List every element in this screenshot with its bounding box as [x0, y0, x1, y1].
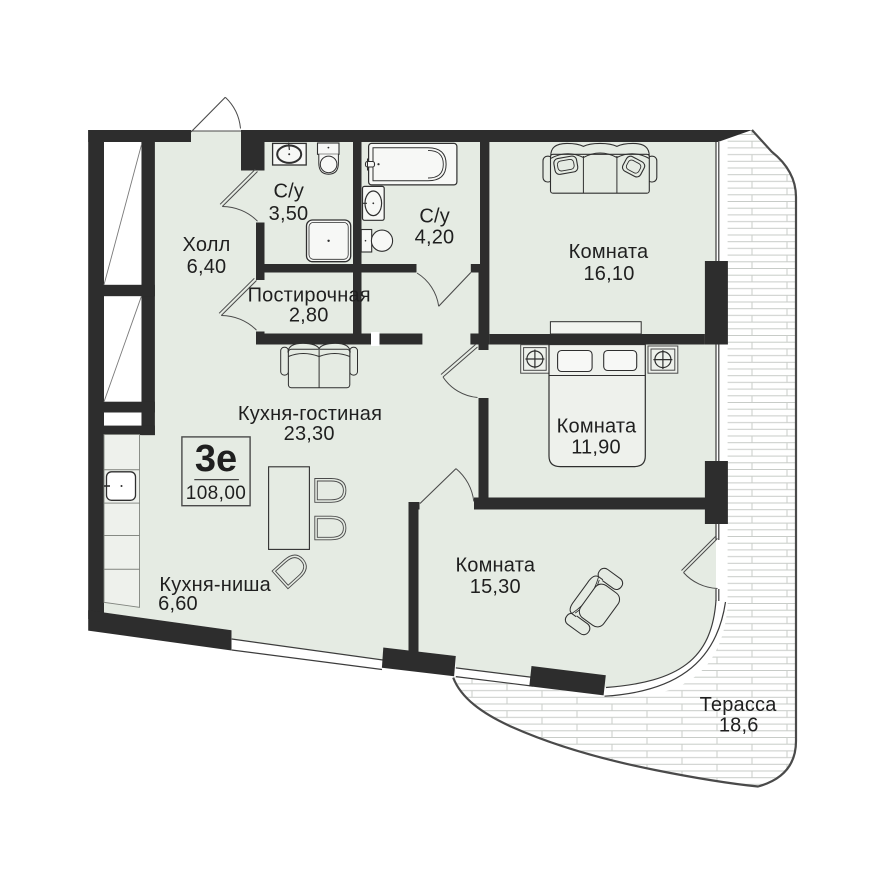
svg-text:Терасса: Терасса: [700, 694, 778, 716]
svg-text:6,40: 6,40: [187, 256, 227, 278]
svg-text:16,10: 16,10: [583, 263, 634, 285]
svg-text:11,90: 11,90: [571, 436, 621, 458]
svg-text:Комната: Комната: [557, 416, 637, 438]
svg-text:С/у: С/у: [419, 205, 450, 227]
svg-text:3е: 3е: [195, 438, 237, 480]
svg-text:15,30: 15,30: [470, 576, 521, 598]
svg-text:4,20: 4,20: [415, 226, 455, 248]
svg-text:Холл: Холл: [183, 234, 231, 256]
svg-text:Комната: Комната: [569, 241, 649, 263]
svg-text:Комната: Комната: [455, 555, 535, 577]
svg-text:6,60: 6,60: [158, 593, 198, 615]
svg-text:Постирочная: Постирочная: [248, 284, 371, 306]
svg-text:18,6: 18,6: [719, 715, 759, 737]
svg-text:23,30: 23,30: [284, 423, 335, 445]
svg-text:Кухня-гостиная: Кухня-гостиная: [238, 403, 382, 425]
svg-text:3,50: 3,50: [269, 203, 309, 225]
svg-text:С/у: С/у: [273, 181, 304, 203]
svg-text:108,00: 108,00: [186, 483, 247, 504]
svg-text:2,80: 2,80: [289, 305, 329, 327]
